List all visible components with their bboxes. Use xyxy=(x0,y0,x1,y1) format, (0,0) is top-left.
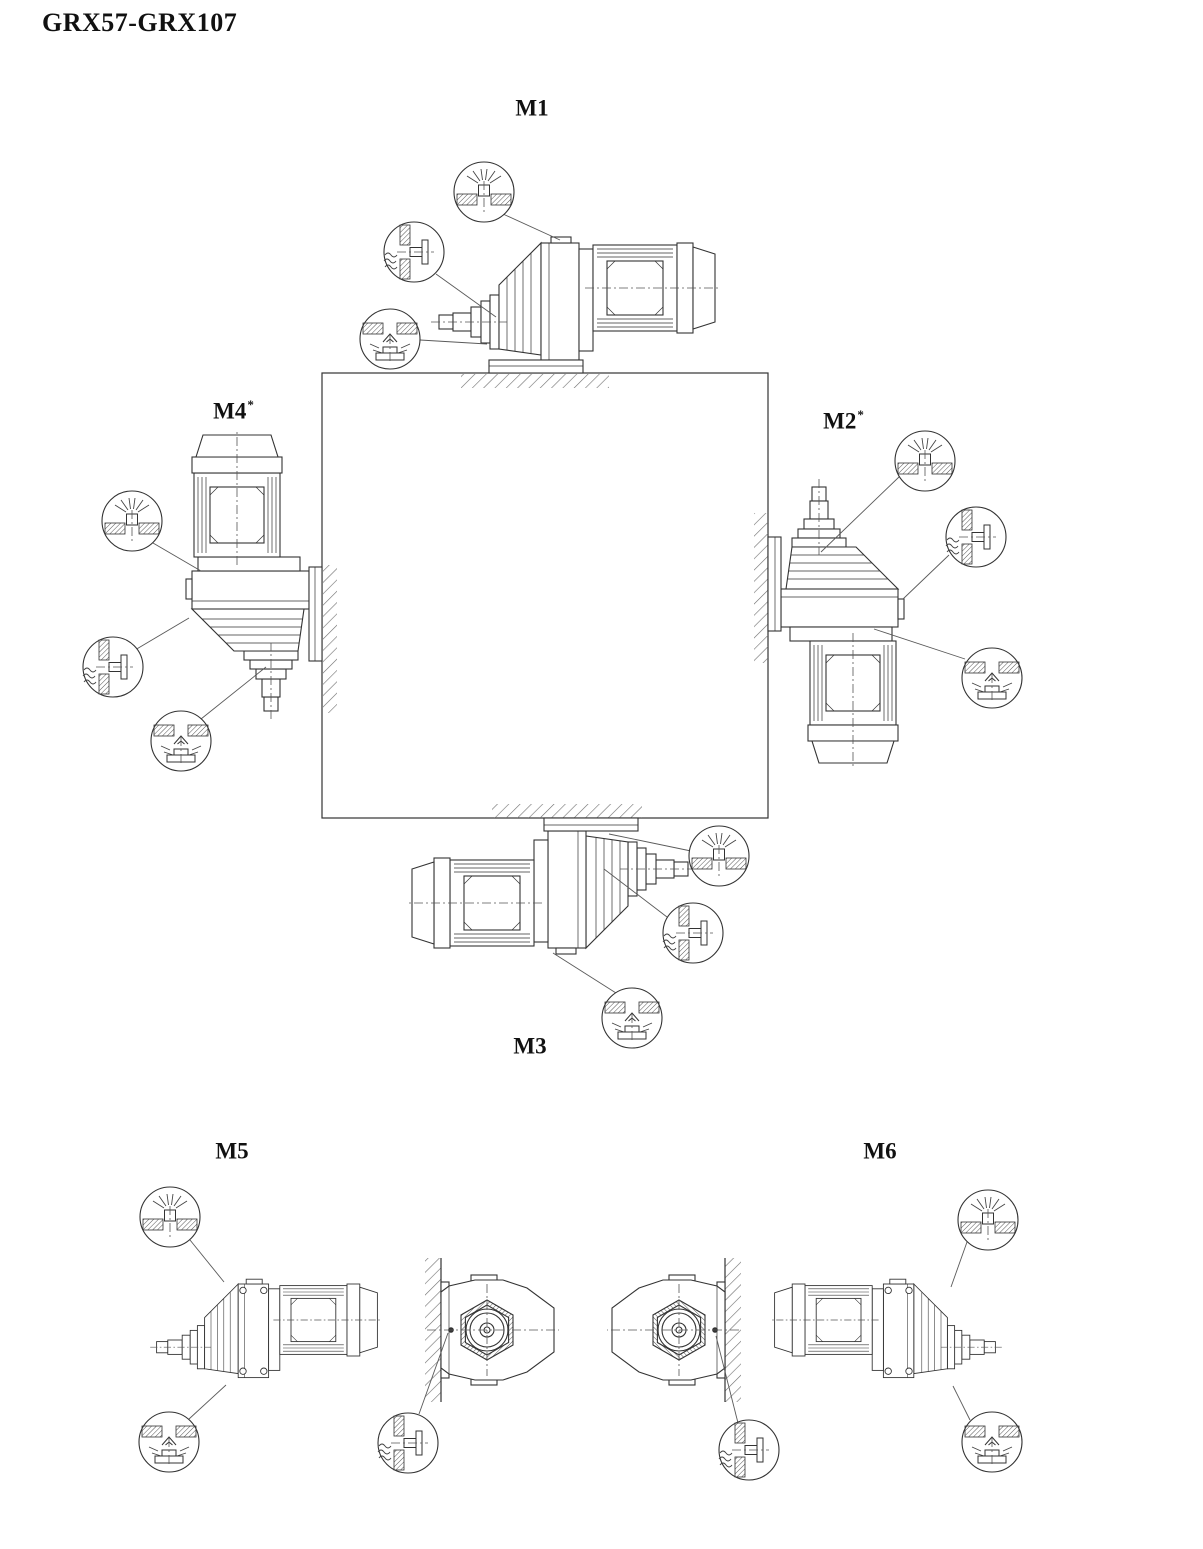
gearmotor-m4-foot xyxy=(309,567,322,661)
oil-level-plug-icon xyxy=(719,1420,779,1480)
oil-level-plug-icon xyxy=(384,222,444,282)
gearmotor-m5-side-view xyxy=(150,1279,382,1377)
gearmotor-m2-side-view xyxy=(781,479,904,769)
label-m5: M5 xyxy=(215,1138,248,1165)
position-m3 xyxy=(406,818,749,1048)
ceiling-hatch-bottom xyxy=(492,804,642,818)
m1-level-leader-line xyxy=(436,274,496,317)
label-m3: M3 xyxy=(513,1033,546,1060)
oil-drain-plug-icon xyxy=(962,648,1022,708)
breather-plug-icon xyxy=(895,431,955,491)
m2-breather-leader-line xyxy=(821,476,900,552)
label-m6: M6 xyxy=(863,1138,896,1165)
m1-breather-leader-line xyxy=(503,214,560,240)
oil-level-plug-icon xyxy=(378,1413,438,1473)
breather-plug-icon xyxy=(958,1190,1018,1250)
m6-drain-leader-line xyxy=(953,1386,970,1420)
diagram-svg xyxy=(0,0,1203,1549)
breather-plug-icon xyxy=(689,826,749,886)
oil-drain-plug-icon xyxy=(151,711,211,771)
m6-breather-leader-line xyxy=(951,1242,967,1287)
mounting-reference-box xyxy=(322,373,768,818)
label-m4: M4* xyxy=(213,398,253,425)
breather-plug-icon xyxy=(454,162,514,222)
floor-hatch-top xyxy=(461,374,609,388)
oil-level-plug-icon xyxy=(946,507,1006,567)
oil-drain-plug-icon xyxy=(360,309,420,369)
gearmotor-m1-foot xyxy=(489,360,583,373)
position-m1 xyxy=(360,162,721,373)
m5-breather-leader-line xyxy=(190,1240,224,1282)
label-m1: M1 xyxy=(515,95,548,122)
position-m5 xyxy=(139,1187,559,1473)
m3-drain-leader-line xyxy=(553,953,616,993)
mounting-positions-page: GRX57-GRX107 xyxy=(0,0,1203,1549)
gearmotor-m4-side-view xyxy=(186,429,309,719)
m1-drain-leader-line xyxy=(420,340,487,344)
m2-level-leader-line xyxy=(903,555,949,599)
position-m2 xyxy=(768,431,1022,769)
gearmotor-m6-side-view xyxy=(770,1279,1002,1377)
gearmotor-m5-front-view xyxy=(427,1275,559,1385)
label-m2: M2* xyxy=(823,408,863,435)
wall-hatch-left xyxy=(323,565,337,713)
position-m4 xyxy=(83,429,322,771)
m4-drain-leader-line xyxy=(201,667,266,719)
oil-drain-plug-icon xyxy=(602,988,662,1048)
breather-plug-icon xyxy=(102,491,162,551)
position-m6 xyxy=(607,1190,1022,1480)
breather-plug-icon xyxy=(140,1187,200,1247)
gearmotor-m3-foot xyxy=(544,818,638,831)
oil-drain-plug-icon xyxy=(962,1412,1022,1472)
gearmotor-m3-side-view xyxy=(406,831,696,954)
oil-level-plug-icon xyxy=(663,903,723,963)
wall-hatch-right xyxy=(754,513,768,663)
m4-level-leader-line xyxy=(135,618,189,650)
oil-level-plug-icon xyxy=(83,637,143,697)
oil-drain-plug-icon xyxy=(139,1412,199,1472)
gearmotor-m1-side-view xyxy=(431,237,721,360)
m5-drain-leader-line xyxy=(189,1385,226,1419)
gearmotor-m6-front-view xyxy=(607,1275,739,1385)
gearmotor-m2-foot xyxy=(768,537,781,631)
